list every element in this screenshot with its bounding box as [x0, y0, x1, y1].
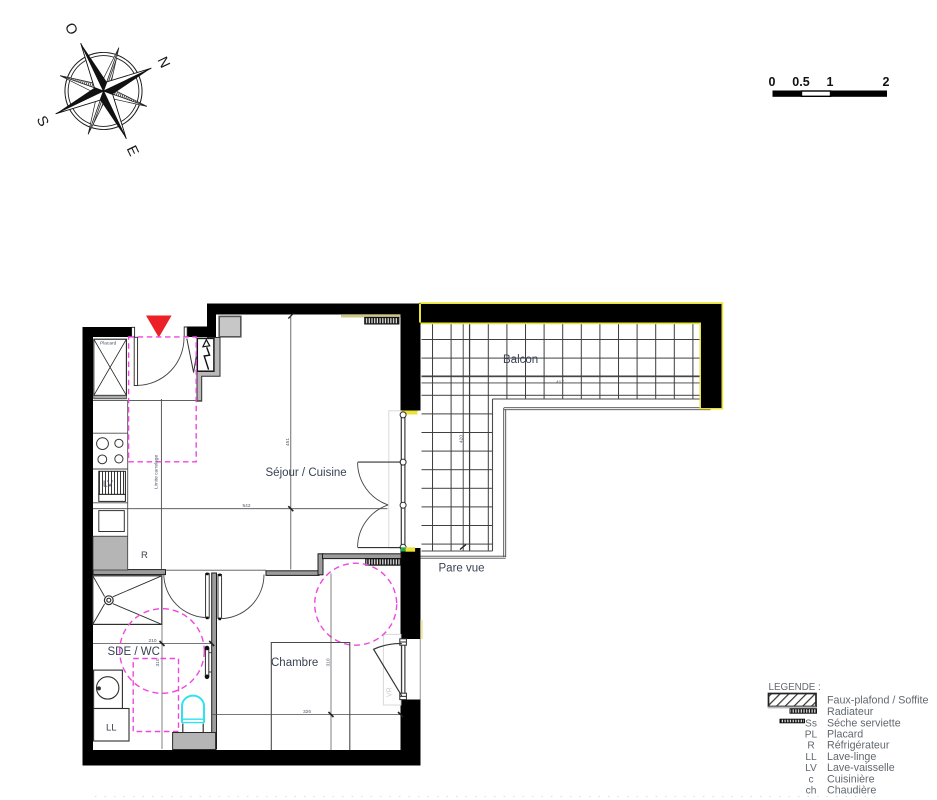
- svg-text:451: 451: [285, 438, 291, 446]
- svg-text:2: 2: [883, 75, 890, 89]
- svg-text:LEGENDE :: LEGENDE :: [769, 682, 821, 693]
- svg-text:Limite carrelage: Limite carrelage: [154, 455, 160, 489]
- svg-text:Ss: Ss: [805, 718, 817, 729]
- svg-text:Placard: Placard: [827, 729, 863, 741]
- svg-text:LV: LV: [103, 479, 113, 489]
- svg-text:310: 310: [155, 658, 161, 666]
- svg-text:R: R: [141, 550, 148, 561]
- svg-text:Réfrigérateur: Réfrigérateur: [827, 740, 890, 752]
- svg-text:SDE / WC: SDE / WC: [108, 646, 160, 658]
- svg-text:Radiateur: Radiateur: [827, 706, 874, 718]
- svg-text:542: 542: [243, 503, 251, 509]
- svg-text:PL: PL: [805, 730, 818, 741]
- svg-text:Lave-linge: Lave-linge: [827, 751, 876, 763]
- svg-text:310: 310: [325, 658, 331, 666]
- svg-text:Placard: Placard: [100, 340, 117, 346]
- svg-text:LV: LV: [805, 763, 817, 774]
- svg-text:Lave-vaisselle: Lave-vaisselle: [827, 762, 895, 774]
- svg-text:Faux-plafond / Soffite: Faux-plafond / Soffite: [827, 695, 928, 707]
- svg-text:R: R: [807, 741, 814, 752]
- svg-text:LL: LL: [805, 752, 817, 763]
- svg-text:Balcon: Balcon: [503, 354, 538, 366]
- svg-text:0: 0: [769, 75, 776, 89]
- svg-text:VR: VR: [387, 687, 394, 697]
- svg-text:Séjour / Cuisine: Séjour / Cuisine: [266, 467, 347, 479]
- svg-text:LL: LL: [106, 723, 117, 734]
- svg-text:Séche serviette: Séche serviette: [827, 717, 901, 729]
- svg-text:1: 1: [827, 75, 834, 89]
- svg-text:Pare vue: Pare vue: [439, 563, 485, 575]
- svg-text:c: c: [808, 774, 813, 785]
- svg-text:Chaudière: Chaudière: [827, 785, 876, 797]
- svg-text:ch: ch: [806, 786, 817, 797]
- svg-text:Cuisinière: Cuisinière: [827, 773, 875, 785]
- svg-text:210: 210: [149, 638, 157, 644]
- svg-text:420: 420: [459, 435, 465, 443]
- svg-text:417: 417: [556, 380, 564, 386]
- svg-text:326: 326: [303, 709, 311, 715]
- svg-text:0.5: 0.5: [792, 75, 809, 89]
- svg-text:Chambre: Chambre: [271, 657, 318, 669]
